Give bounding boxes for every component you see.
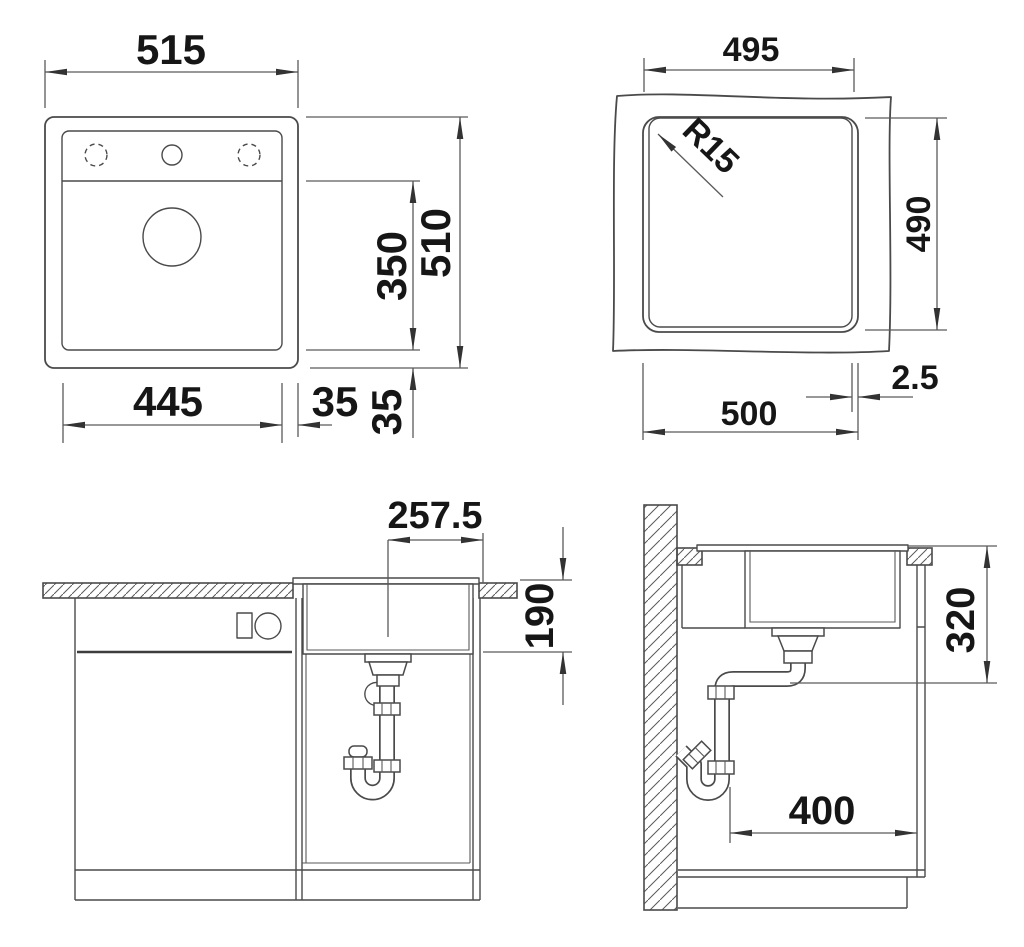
- cutout-edge-gap-label: 2.5: [891, 359, 938, 397]
- cutout-width-label: 500: [721, 395, 778, 433]
- sink-rim-side: [697, 545, 908, 551]
- pipe-nut-upper: [374, 703, 400, 715]
- sink-rim-front: [293, 578, 479, 584]
- drain-circle: [143, 208, 201, 266]
- counter-section-right: [907, 548, 932, 565]
- sink-body-outline: [649, 118, 852, 327]
- faucet-hole-center: [162, 145, 182, 165]
- cabinet-front-edge: [917, 565, 925, 877]
- strainer-body: [369, 662, 407, 675]
- side-pipe-nut-lower: [708, 761, 734, 774]
- plan-view: 515 350 510 35 445 35: [45, 26, 468, 443]
- front-view: 257.5 190: [43, 495, 572, 900]
- side-outlet-nut: [683, 741, 711, 769]
- plan-margin-bottom-label: 35: [363, 389, 410, 436]
- trap-pipe: [358, 686, 387, 793]
- front-bowl-depth-label: 190: [518, 583, 562, 650]
- side-strainer-flange: [772, 628, 824, 636]
- cutout-inner-width-label: 495: [723, 31, 780, 69]
- side-outlet-nut-group: [683, 741, 711, 769]
- strainer-flange: [365, 654, 411, 662]
- side-drain-wall-distance-label: 400: [789, 789, 856, 833]
- plan-overall-width-label: 515: [136, 26, 206, 73]
- cutout-corner-radius-label: R15: [675, 111, 746, 182]
- cutout-view: R15 495 490 500 2.5: [613, 31, 947, 440]
- strainer-nut: [377, 675, 399, 686]
- cutout-height-label: 490: [900, 196, 938, 253]
- front-drain-offset-label: 257.5: [387, 495, 482, 537]
- side-view: 320 400: [644, 505, 997, 910]
- countertop-section: [613, 94, 891, 352]
- plan-bowl-height-label: 350: [368, 231, 415, 301]
- side-pipe-nut-upper: [708, 686, 734, 699]
- basin-side-outer: [745, 551, 900, 628]
- side-strainer-body: [778, 636, 818, 651]
- plan-bowl-width-label: 445: [133, 378, 203, 425]
- appliance-knob: [255, 613, 281, 639]
- appliance-switch: [237, 613, 252, 638]
- cabinet-back-lines: [682, 565, 745, 628]
- sink-outline: [45, 117, 298, 368]
- side-install-depth-label: 320: [939, 587, 983, 654]
- wall-section: [644, 505, 677, 910]
- side-trap-pipe: [681, 663, 798, 793]
- plan-overall-height-label: 510: [412, 208, 459, 278]
- technical-drawing-page: 515 350 510 35 445 35 R15 495 490: [0, 0, 1024, 947]
- cutout-outline: [643, 117, 858, 332]
- side-strainer-nut: [784, 651, 812, 663]
- trap-outlet-cap: [349, 746, 367, 757]
- plan-margin-right-label: 35: [312, 378, 359, 425]
- trap-outlet-nut: [344, 757, 372, 769]
- pipe-nut-lower: [374, 760, 400, 772]
- counter-right-hatch: [479, 583, 517, 598]
- counter-left-hatch: [43, 583, 293, 598]
- cabinet-bottom-plinth: [678, 870, 925, 908]
- faucet-hole-right: [238, 144, 260, 166]
- faucet-hole-left: [85, 144, 107, 166]
- sink-rim-inner: [62, 131, 282, 350]
- sink-technical-drawing: 515 350 510 35 445 35 R15 495 490: [0, 0, 1024, 947]
